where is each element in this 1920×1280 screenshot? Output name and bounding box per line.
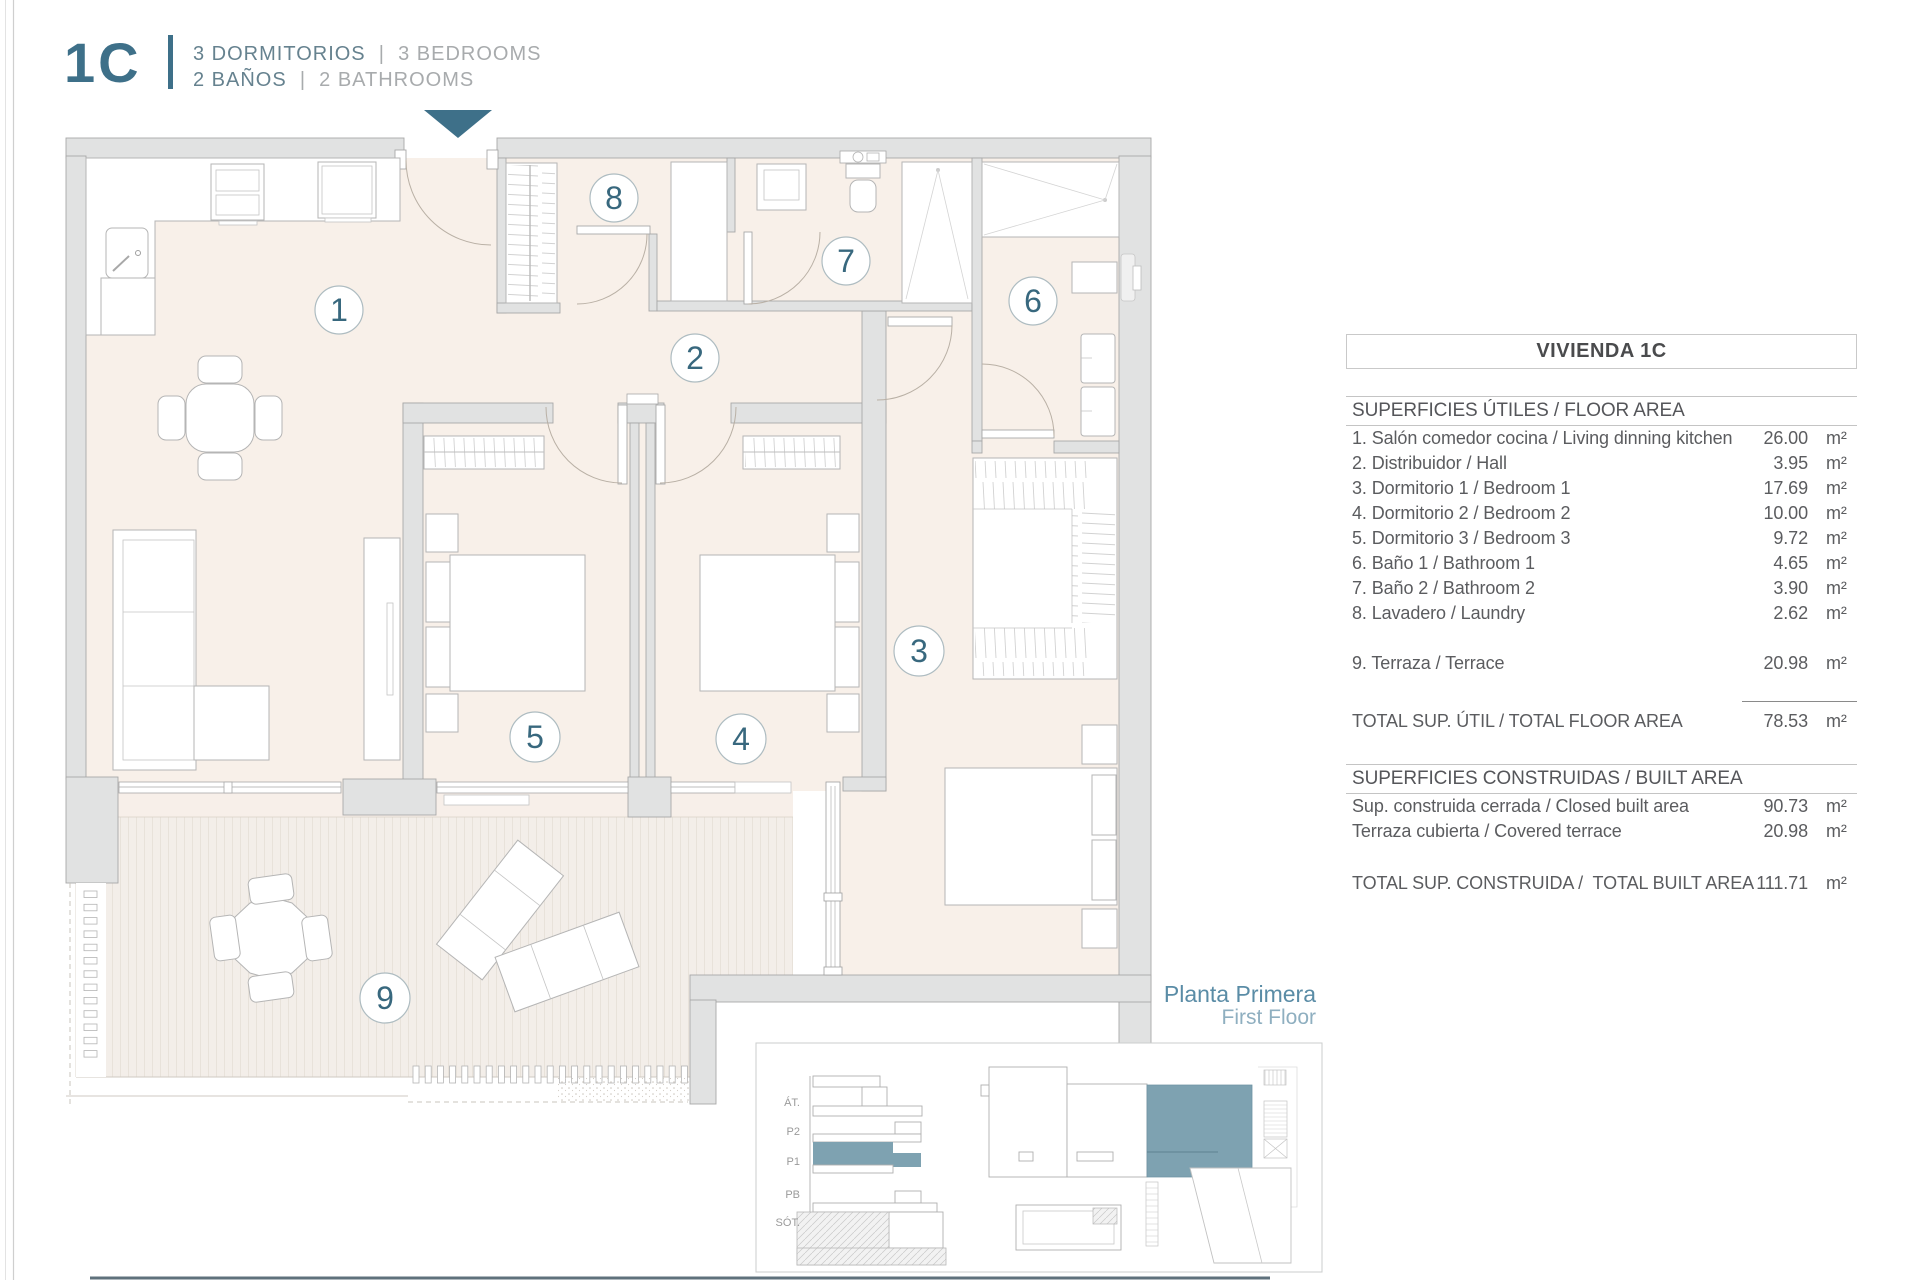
svg-text:7: 7 [837, 243, 855, 279]
svg-text:8: 8 [605, 180, 623, 216]
svg-text:2: 2 [686, 340, 704, 376]
svg-text:4: 4 [732, 721, 750, 757]
svg-text:1: 1 [330, 292, 348, 328]
svg-text:5: 5 [526, 719, 544, 755]
svg-text:3: 3 [910, 633, 928, 669]
svg-text:6: 6 [1024, 283, 1042, 319]
svg-text:9: 9 [376, 980, 394, 1016]
